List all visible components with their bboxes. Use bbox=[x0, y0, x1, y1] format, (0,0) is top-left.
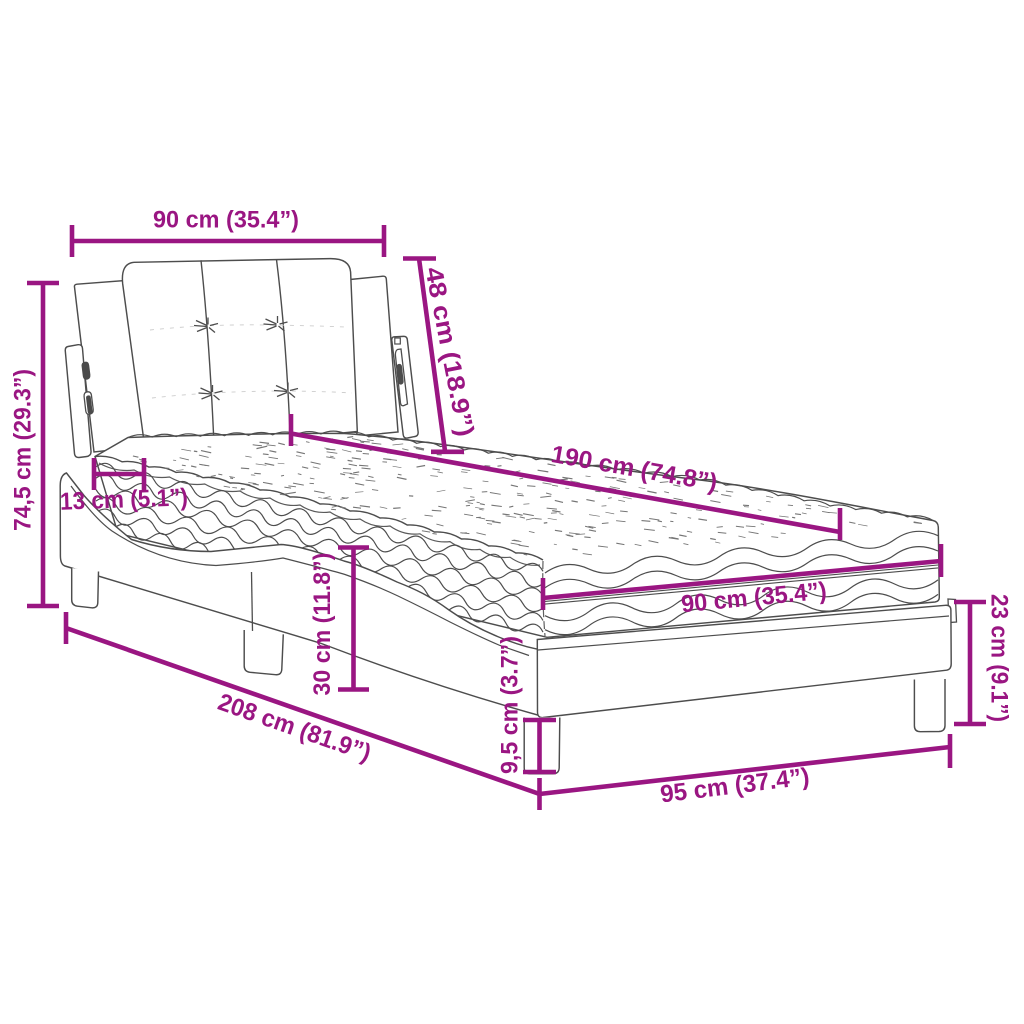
svg-text:30 cm (11.8”): 30 cm (11.8”) bbox=[309, 553, 336, 696]
svg-text:23 cm (9.1”): 23 cm (9.1”) bbox=[986, 594, 1013, 722]
svg-text:9,5 cm (3.7”): 9,5 cm (3.7”) bbox=[496, 636, 523, 774]
svg-text:74,5 cm (29.3”): 74,5 cm (29.3”) bbox=[9, 369, 36, 531]
svg-text:13 cm (5.1”): 13 cm (5.1”) bbox=[60, 484, 189, 515]
svg-text:90 cm (35.4”): 90 cm (35.4”) bbox=[153, 206, 299, 233]
